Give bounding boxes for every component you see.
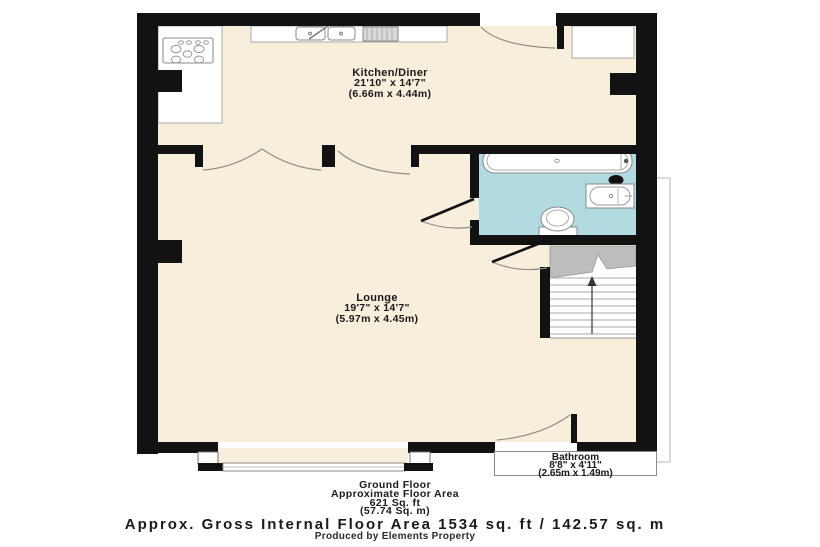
bathroom-label-box: Bathroom 8'8" x 4'11" (2.65m x 1.49m) bbox=[494, 451, 657, 476]
bay-pane-left bbox=[198, 452, 218, 464]
credit-line: Produced by Elements Property bbox=[0, 532, 790, 541]
kitchen-label: Kitchen/Diner 21'10" x 14'7" (6.66m x 4.… bbox=[300, 68, 480, 99]
wall-top-left bbox=[137, 13, 480, 26]
staircase bbox=[550, 246, 636, 338]
gross-internal-area: Approx. Gross Internal Floor Area 1534 s… bbox=[0, 519, 790, 531]
wall-right bbox=[636, 13, 657, 454]
floorplan-page: Kitchen/Diner 21'10" x 14'7" (6.66m x 4.… bbox=[0, 0, 820, 547]
wall-divider-mid bbox=[322, 145, 335, 167]
wall-divider-seg1 bbox=[158, 145, 201, 154]
chimney-breast-left-2 bbox=[158, 240, 182, 263]
bay-pane-right bbox=[410, 452, 430, 464]
chimney-breast-left-1 bbox=[158, 70, 182, 92]
footer: Ground Floor Approximate Floor Area 621 … bbox=[0, 481, 790, 541]
lounge-dims-m: (5.97m x 4.45m) bbox=[287, 314, 467, 324]
bathroom-dims-m: (2.65m x 1.49m) bbox=[495, 470, 656, 478]
wall-bathroom-left-top bbox=[470, 154, 479, 198]
front-door-leaf bbox=[571, 414, 577, 443]
kitchen-dims-m: (6.66m x 4.44m) bbox=[300, 89, 480, 99]
back-door-leaf bbox=[557, 26, 564, 49]
wall-divider-seg2 bbox=[411, 145, 636, 154]
kitchen-appliance bbox=[572, 26, 634, 58]
bay-window-floor bbox=[218, 448, 408, 464]
bay-block-right bbox=[404, 463, 433, 471]
wall-bottom-left bbox=[137, 442, 218, 453]
lounge-label: Lounge 19'7" x 14'7" (5.97m x 4.45m) bbox=[287, 293, 467, 324]
wall-bottom-mid bbox=[408, 442, 495, 453]
draining-board-icon bbox=[363, 27, 398, 41]
area-sqm: (57.74 Sq. m) bbox=[0, 507, 790, 516]
chimney-breast-right bbox=[610, 73, 636, 95]
basin-icon bbox=[586, 184, 634, 208]
hob-icon bbox=[163, 38, 213, 63]
wall-left bbox=[137, 13, 158, 454]
wall-bathroom-bottom bbox=[470, 235, 636, 245]
bay-block-left bbox=[198, 463, 223, 471]
wall-stairs bbox=[540, 267, 550, 338]
wall-divider-jamb1 bbox=[195, 145, 203, 167]
